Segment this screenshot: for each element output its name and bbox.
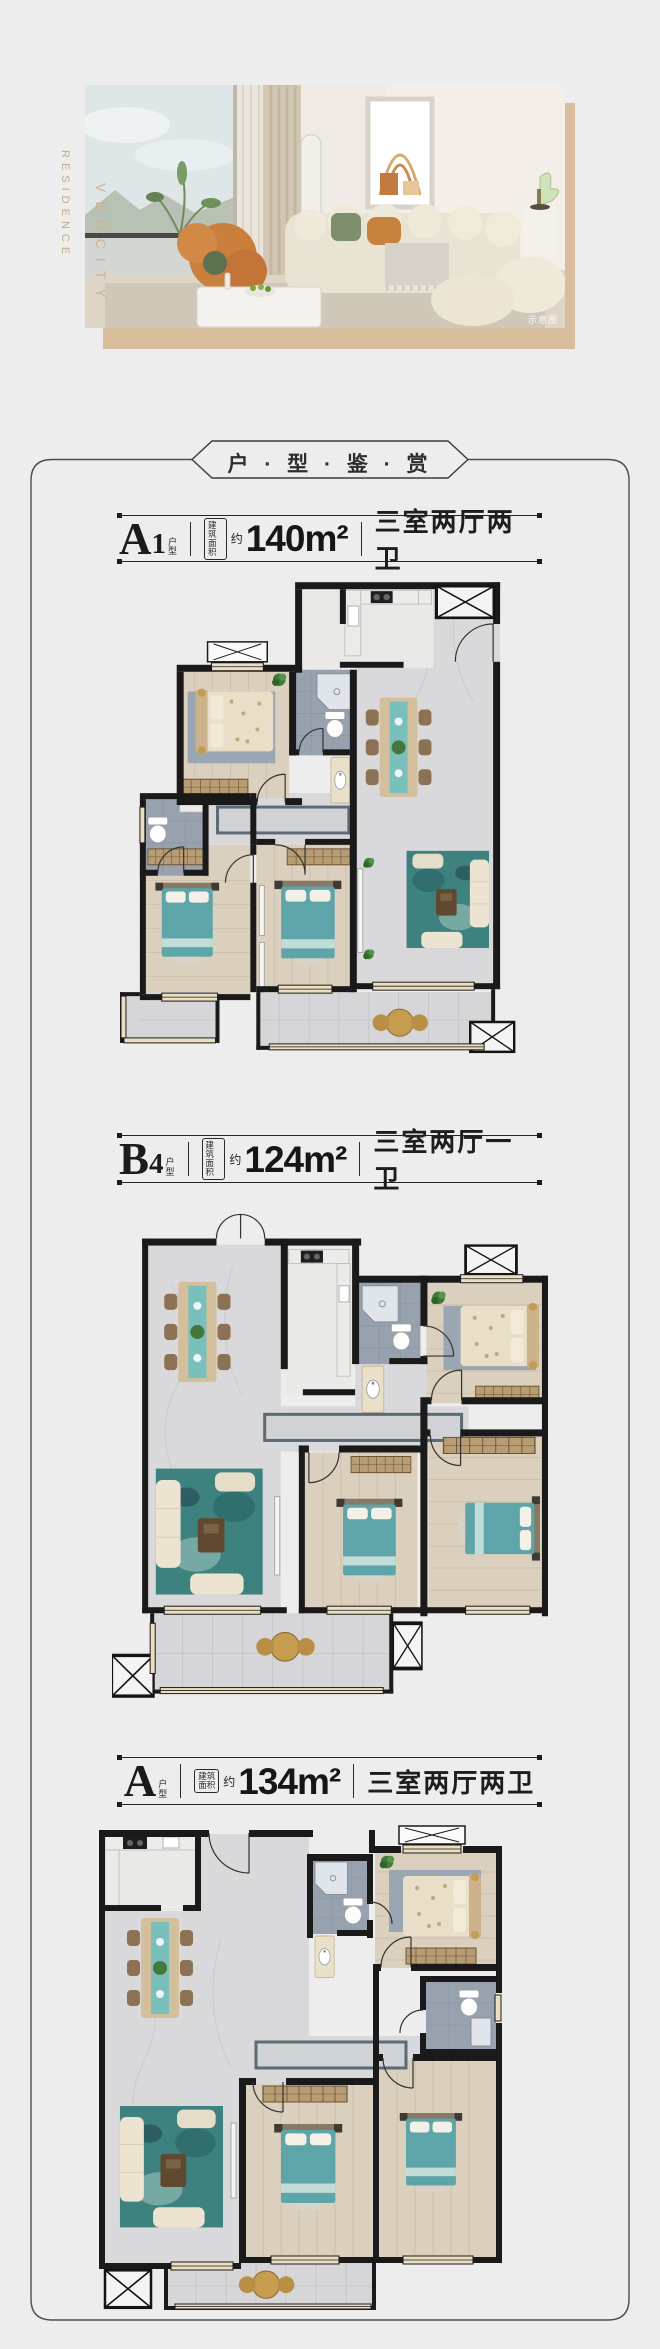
section-title-a1: A1 户型 建筑面积 约 140m² 三室两厅两卫 [119, 515, 540, 562]
end-cap [117, 559, 122, 564]
page-title: 户 · 型 · 鉴 · 赏 [0, 448, 660, 478]
hall-runner [265, 1414, 462, 1440]
area-label-box: 建筑面积 [204, 518, 227, 560]
bed-center [275, 881, 342, 965]
bed-center [274, 2124, 342, 2210]
end-cap [537, 1802, 542, 1807]
floor-plan-a [62, 1818, 520, 2318]
area-value: 140m² [246, 520, 348, 557]
section-title-b4: B4 户型 建筑面积 约 124m² 三室两厅一卫 [119, 1135, 540, 1183]
bed-right [459, 1496, 540, 1560]
end-cap [537, 559, 542, 564]
end-cap [537, 1755, 542, 1760]
master-bed [196, 689, 274, 755]
living-room-set [407, 851, 489, 948]
dining-table [127, 1918, 193, 2018]
area-value: 134m² [238, 1763, 340, 1800]
floor-plan-a1 [120, 582, 518, 1060]
end-cap [117, 513, 122, 518]
unit-suffix: 户型 [168, 538, 177, 557]
end-cap [537, 1133, 542, 1138]
area-group: 建筑面积 约 140m² [204, 518, 348, 560]
hall-runner [218, 807, 349, 833]
shaft [112, 1655, 154, 1696]
area-label-box: 建筑面积 [202, 1138, 226, 1180]
end-cap [537, 513, 542, 518]
divider [353, 1764, 354, 1798]
area-label-box: 建筑面积 [194, 1769, 219, 1793]
bed-left [155, 883, 219, 963]
shower-tray [471, 2018, 491, 2046]
area-group: 建筑面积 约 134m² [194, 1763, 340, 1800]
divider [190, 522, 191, 556]
end-cap [537, 1180, 542, 1185]
tv-cabinet [275, 1497, 280, 1575]
room-layout: 三室两厅一卫 [373, 1122, 540, 1196]
bed-center [336, 1499, 402, 1582]
master-bed [461, 1303, 539, 1369]
living-room-set [156, 1469, 263, 1595]
model-name: A1 户型 [119, 521, 177, 557]
shaft [436, 586, 494, 618]
divider [361, 522, 362, 556]
model-name: A 户型 [124, 1763, 168, 1799]
unit-suffix: 户型 [166, 1158, 175, 1177]
end-cap [117, 1180, 122, 1185]
room-layout: 三室两厅两卫 [367, 1763, 535, 1800]
divider [180, 1764, 181, 1798]
area-group: 建筑面积 约 124m² [202, 1138, 347, 1180]
tv-cabinet [231, 2123, 236, 2198]
unit-suffix: 户型 [158, 1780, 167, 1799]
end-cap [117, 1133, 122, 1138]
divider [359, 1142, 360, 1176]
divider [188, 1142, 189, 1176]
living-room-set [120, 2106, 223, 2227]
poster-page: 示意图 RESIDENCE VERCITY 户 · 型 · 鉴 · 赏 A1 户… [0, 0, 660, 2349]
section-title-a: A 户型 建筑面积 约 134m² 三室两厅两卫 [119, 1757, 540, 1805]
shaft [466, 1246, 517, 1275]
area-value: 124m² [244, 1141, 346, 1178]
shaft [105, 2270, 151, 2308]
model-name: B4 户型 [119, 1141, 175, 1177]
end-cap [117, 1802, 122, 1807]
end-cap [117, 1755, 122, 1760]
dining-table [366, 698, 432, 798]
tv-cabinet [358, 869, 363, 953]
master-bed [403, 1873, 481, 1939]
shaft [393, 1623, 422, 1668]
room-layout: 三室两厅两卫 [375, 502, 540, 576]
floor-plan-b4 [112, 1205, 554, 1698]
bed-right [400, 2113, 462, 2192]
dining-table [164, 1282, 230, 1382]
